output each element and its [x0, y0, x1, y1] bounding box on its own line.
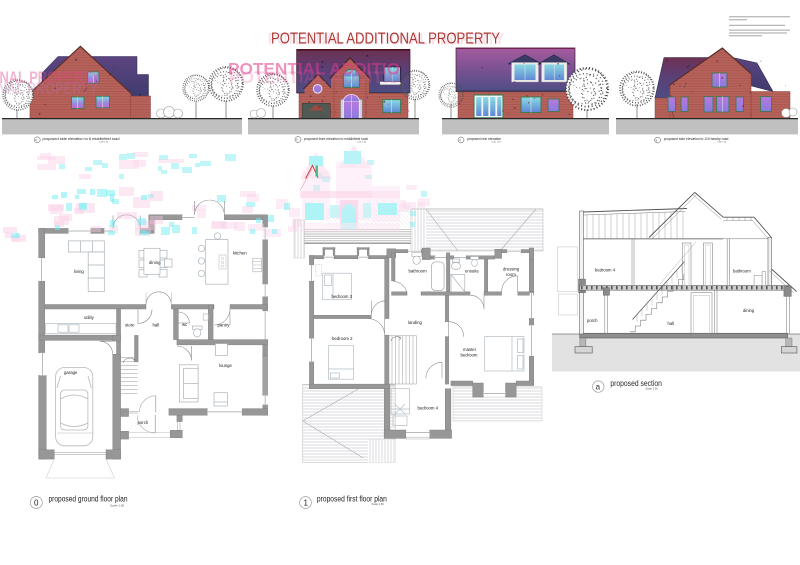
svg-text:dining: dining — [743, 308, 755, 313]
svg-text:proposed ground floor plan: proposed ground floor plan — [49, 495, 128, 504]
svg-text:master: master — [463, 347, 477, 352]
svg-text:proposed front elevation to mi: proposed front elevation to middlefield … — [304, 137, 368, 141]
svg-text:ensuite: ensuite — [465, 269, 479, 274]
svg-text:proposed section: proposed section — [610, 378, 662, 388]
svg-text:proposed side elevation to 119: proposed side elevation to 119 bawtry ro… — [664, 137, 729, 141]
svg-text:landing: landing — [408, 320, 422, 325]
svg-text:POTENTIAL ADDITIO: POTENTIAL ADDITIO — [229, 69, 401, 87]
svg-text:dressing: dressing — [503, 267, 520, 272]
svg-text:lounge: lounge — [219, 363, 233, 368]
svg-text:Scale 1:50: Scale 1:50 — [646, 387, 659, 391]
svg-text:Scale 1:50: Scale 1:50 — [372, 502, 385, 506]
svg-text:bathroom: bathroom — [733, 269, 751, 274]
svg-text:dining: dining — [149, 260, 161, 265]
svg-text:porch: porch — [587, 318, 598, 323]
svg-text:scale 1:50: scale 1:50 — [99, 142, 109, 144]
svg-text:pantry: pantry — [218, 323, 231, 328]
svg-text:bedroom 3: bedroom 3 — [332, 294, 353, 299]
svg-text:proposed side elevation to 6 m: proposed side elevation to 6 middlefield… — [43, 137, 120, 141]
svg-text:Scale 1:50: Scale 1:50 — [110, 504, 125, 508]
svg-text:scale 1:50: scale 1:50 — [717, 142, 727, 144]
svg-text:bathroom: bathroom — [409, 269, 428, 274]
svg-text:store: store — [125, 323, 135, 328]
svg-text:0: 0 — [34, 499, 39, 508]
svg-text:hall: hall — [668, 321, 675, 326]
svg-text:room: room — [506, 272, 516, 277]
svg-text:TIONAL PROPERTY: TIONAL PROPERTY — [0, 80, 98, 98]
svg-text:1: 1 — [304, 499, 309, 508]
svg-text:hall: hall — [153, 323, 160, 328]
svg-text:kitchen: kitchen — [233, 251, 247, 256]
svg-text:proposed rear elevation: proposed rear elevation — [467, 137, 501, 141]
svg-text:bedroom 4: bedroom 4 — [595, 268, 616, 273]
svg-text:a: a — [596, 383, 601, 392]
svg-text:utility: utility — [84, 315, 95, 320]
svg-text:bedroom 4: bedroom 4 — [418, 406, 439, 411]
svg-text:bedroom 2: bedroom 2 — [332, 336, 353, 341]
svg-text:garage: garage — [64, 370, 78, 375]
svg-text:scale 1:50: scale 1:50 — [357, 141, 367, 143]
svg-text:porch: porch — [138, 420, 149, 425]
svg-text:bedroom: bedroom — [461, 353, 478, 358]
svg-text:scale 1:50: scale 1:50 — [492, 142, 502, 144]
svg-text:proposed first floor plan: proposed first floor plan — [317, 494, 387, 503]
svg-text:POTENTIAL ADDITIONAL PROPERTY: POTENTIAL ADDITIONAL PROPERTY — [271, 31, 500, 48]
svg-text:living: living — [74, 269, 84, 274]
svg-text:wc: wc — [182, 322, 188, 327]
